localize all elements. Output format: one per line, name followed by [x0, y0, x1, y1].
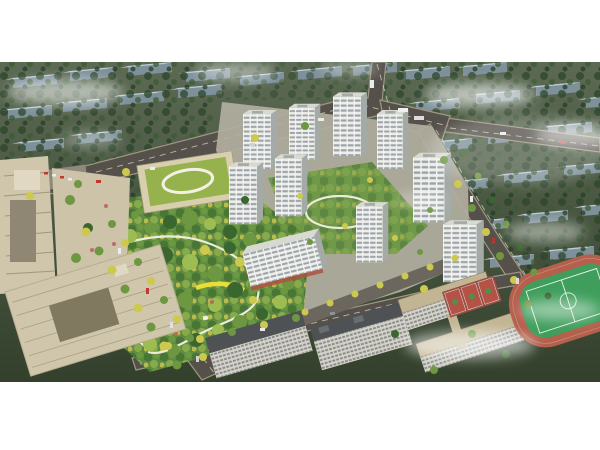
- letterbox-bottom: [0, 382, 600, 450]
- letterbox-top: [0, 0, 600, 62]
- bus: [398, 108, 408, 112]
- tower: [333, 92, 367, 156]
- tower: [289, 104, 320, 160]
- office-atrium: [10, 200, 36, 262]
- office-roof-core: [14, 170, 40, 190]
- screenshot-canvas: [0, 0, 600, 450]
- aerial-masterplan-rendering: [0, 0, 600, 450]
- tower: [229, 162, 263, 224]
- tower: [275, 154, 307, 216]
- tower: [243, 110, 277, 169]
- tower: [356, 202, 388, 262]
- tower: [377, 110, 408, 169]
- rendering-scene: [0, 61, 600, 383]
- tower: [443, 220, 484, 282]
- bus: [414, 116, 424, 120]
- bus: [370, 80, 374, 88]
